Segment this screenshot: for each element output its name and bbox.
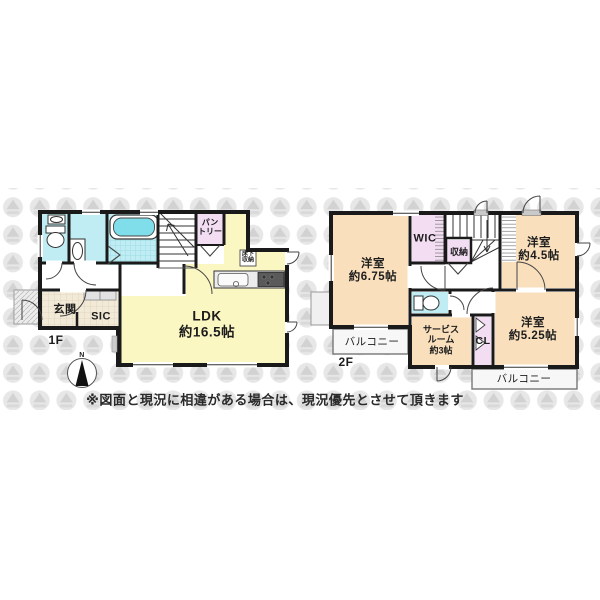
room-label-wic: WIC [414,233,437,246]
room-label-bedroom-525: 洋室 約5.25帖 [509,317,557,343]
room-label-bedroom-675: 洋室 約6.75帖 [349,258,397,284]
room-label-ldk: LDK 約16.5帖 [179,308,235,339]
washbasin-icon [70,239,85,262]
disclaimer-text: ※図面と現況に相違がある場合は、現況優先とさせて頂きます [86,390,464,409]
compass [68,359,97,388]
kitchen-stove [258,273,284,287]
kitchen-sink [218,274,248,287]
north-label: N [79,352,85,360]
toilet-icon-2f [414,296,439,310]
room-label-bedroom-45: 洋室 約4.5帖 [518,237,560,263]
room-label-pantry: パン トリー [198,218,222,236]
floor-plan-drawing [0,0,600,600]
door-sill [522,210,541,216]
room-label-storage: 収納 [450,247,468,257]
floor-label-1f: 1F [48,334,63,348]
floor-plan-page: 1F 玄関 SIC LDK 約16.5帖 パン トリー 床下 収納 2F 洋室 … [0,0,600,600]
room-label-sic: SIC [91,311,111,324]
bathtub-icon [110,215,158,239]
room-label-service: サービス ルーム 約3帖 [423,324,459,355]
toilet-icon-1f [46,215,65,248]
kitchen-counter [214,271,285,288]
label-balcony-right: バルコニー [497,373,552,385]
room-label-underfloor-storage: 床下 収納 [242,252,254,265]
floor-label-2f: 2F [338,356,353,370]
label-balcony-left: バルコニー [345,336,400,348]
room-label-genkan: 玄関 [54,304,77,317]
door-sill [474,210,488,216]
side-step [311,292,331,325]
sic-shelf [100,291,116,300]
room-label-cl: CL [476,335,491,347]
